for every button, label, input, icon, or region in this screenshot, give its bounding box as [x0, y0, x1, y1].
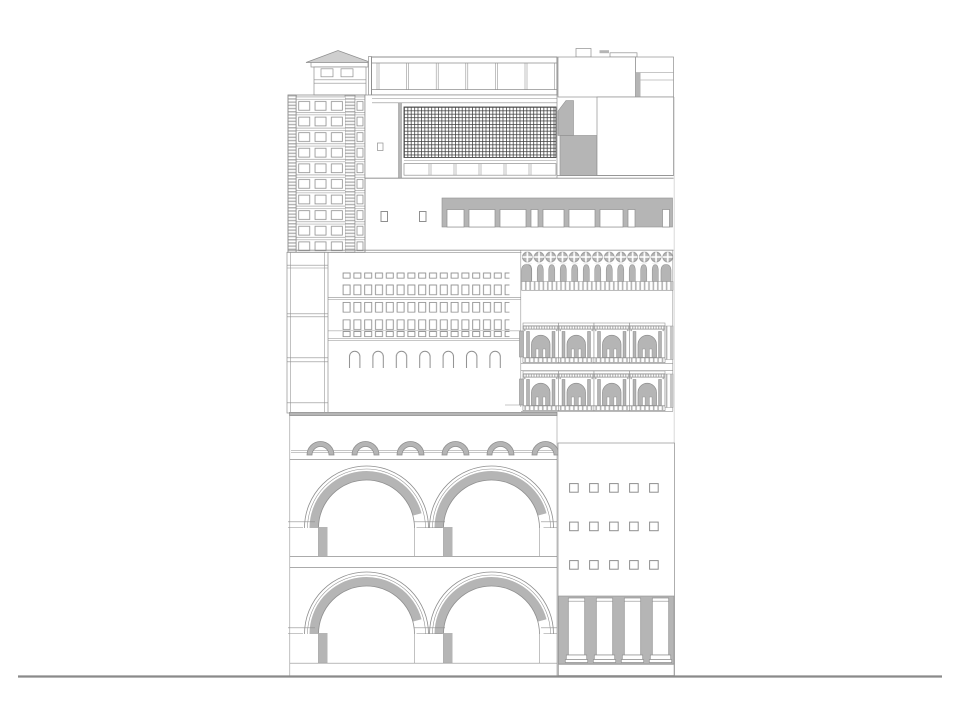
arched-openings-row	[343, 347, 507, 368]
square-window-row-2	[569, 522, 669, 532]
gallery-right-cap	[665, 326, 673, 360]
arch-reveal-grey	[319, 527, 328, 556]
window-row-4	[342, 319, 510, 330]
modern-facade-colonnade	[558, 443, 675, 676]
tower-grid-facade	[288, 95, 365, 252]
window-grid-narrow	[355, 97, 365, 253]
rooftop-glazing-band	[372, 57, 558, 95]
roof-bump	[576, 49, 591, 58]
lantern-window	[321, 69, 333, 77]
quatrefoil-row	[522, 251, 674, 263]
gallery-lower-tier	[520, 371, 674, 411]
gallery-right-cap	[665, 374, 673, 408]
service-core-strip	[287, 252, 328, 413]
white-volume-large	[597, 97, 674, 176]
gallery-left-cap	[520, 331, 524, 357]
lantern-window	[341, 69, 353, 77]
window-row-3	[342, 302, 510, 313]
arch-reveal-grey	[319, 633, 328, 663]
window-grid-wide	[296, 97, 345, 253]
pointed-arch-arcade	[523, 263, 661, 281]
small-window	[420, 212, 427, 222]
roof-bump	[610, 53, 637, 57]
arcade-end-cap	[661, 265, 671, 282]
panel-row	[404, 164, 556, 176]
striped-pilaster	[345, 95, 355, 252]
window-row-2	[342, 285, 510, 296]
roof-fascia	[311, 63, 368, 68]
ground-colonnade	[559, 596, 675, 676]
colonnette-row	[522, 282, 674, 291]
white-volume-corner	[636, 57, 674, 97]
grey-bar	[636, 73, 641, 98]
small-window	[378, 143, 384, 151]
gallery-upper-tier	[520, 323, 674, 363]
strip-outline	[287, 252, 328, 413]
gallery-left-cap	[520, 379, 524, 405]
venetian-gothic-loggia	[522, 251, 674, 291]
composite-elevation-drawing	[0, 0, 960, 720]
side-wall-grey	[399, 103, 401, 178]
roof-bump-grey	[600, 50, 610, 53]
square-window-row-1	[569, 483, 669, 493]
striped-pilaster	[288, 95, 296, 252]
cornice-band	[290, 412, 558, 415]
colonnade-base-strip	[559, 665, 675, 676]
grey-block	[560, 136, 597, 176]
arch-reveal-grey	[444, 527, 453, 556]
window-row-small-1	[342, 273, 510, 279]
white-volume-upper	[558, 57, 636, 97]
small-window	[381, 212, 388, 222]
curtain-wall-block	[365, 95, 557, 178]
arch-reveal-grey	[444, 633, 453, 663]
curtain-wall-grid	[404, 107, 556, 158]
elevation-canvas	[0, 0, 960, 720]
window-row-small-5	[342, 331, 510, 337]
arcade-end-cap	[522, 265, 532, 282]
square-window-row-3	[569, 560, 669, 570]
